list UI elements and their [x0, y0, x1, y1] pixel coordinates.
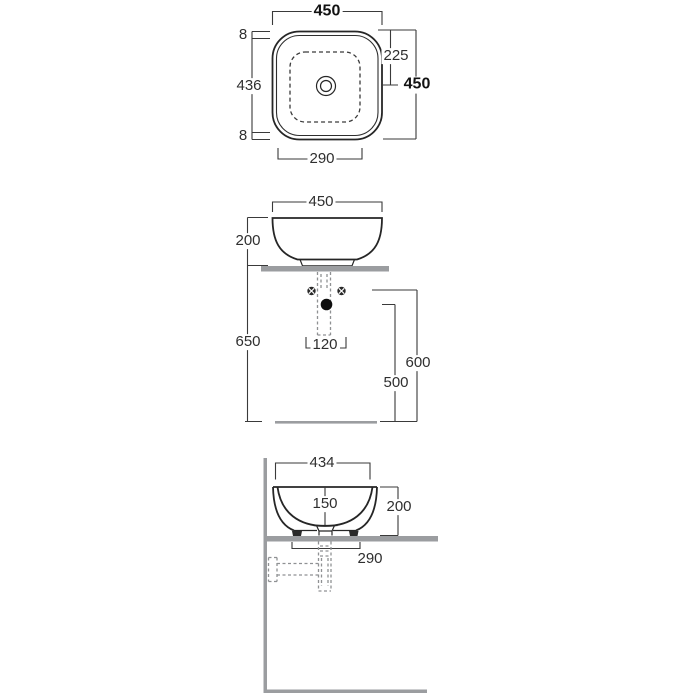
plan-bowl-bottom-dashed	[290, 52, 360, 122]
front-dim-fixing-height: 600	[403, 355, 432, 371]
front-dim-overall-width: 450	[306, 194, 335, 210]
plan-drain-inner-icon	[321, 81, 332, 92]
technical-drawing-canvas: 450 8 436 8 225 450 290 450 200 650 120 …	[0, 0, 700, 700]
plan-dim-rim-top: 8	[237, 27, 249, 43]
side-foot-left	[292, 531, 302, 536]
front-countertop-surface	[261, 266, 389, 272]
side-floor-line	[264, 690, 428, 694]
side-wall-line	[264, 458, 268, 693]
plan-dim-base-width: 290	[307, 151, 336, 167]
front-dim-counter-height: 650	[233, 334, 262, 350]
side-dim-basin-height: 200	[384, 499, 413, 515]
plan-drain-icon	[317, 77, 336, 96]
side-dim-290-bracket	[292, 542, 360, 549]
side-dim-inner-width: 434	[307, 455, 336, 471]
plan-basin-inner-rim	[277, 36, 379, 136]
side-foot-right	[349, 531, 359, 536]
side-dim-bowl-depth: 150	[310, 496, 339, 512]
front-dim-basin-height: 200	[233, 233, 262, 249]
water-supply-point-icon	[321, 299, 333, 311]
fixing-screw-right-icon	[337, 287, 345, 295]
plan-dim-overall-depth: 450	[402, 77, 433, 94]
plan-dim-inner-length: 436	[234, 78, 263, 94]
drawing-linework	[0, 0, 700, 700]
side-wall-waste-pipe-dashed	[269, 558, 319, 582]
side-view	[264, 458, 439, 693]
side-dim-drain-wall: 290	[355, 551, 384, 567]
plan-view	[252, 12, 416, 160]
fixing-screw-left-icon	[307, 287, 315, 295]
side-wall-right-curve	[356, 487, 377, 531]
plan-basin-outer-rim	[273, 32, 383, 140]
front-basin-foot	[300, 260, 355, 266]
front-dim-drain-offset: 120	[310, 337, 339, 353]
side-wall-left-curve	[273, 487, 294, 531]
front-basin-outline	[273, 218, 383, 260]
plan-dim-drain-center: 225	[381, 48, 410, 64]
front-floor-line	[275, 421, 377, 424]
side-countertop-surface	[267, 536, 438, 542]
plan-dim-rim-bottom: 8	[237, 128, 249, 144]
front-dim-supply-height: 500	[381, 375, 410, 391]
plan-dim-overall-width: 450	[312, 4, 343, 21]
